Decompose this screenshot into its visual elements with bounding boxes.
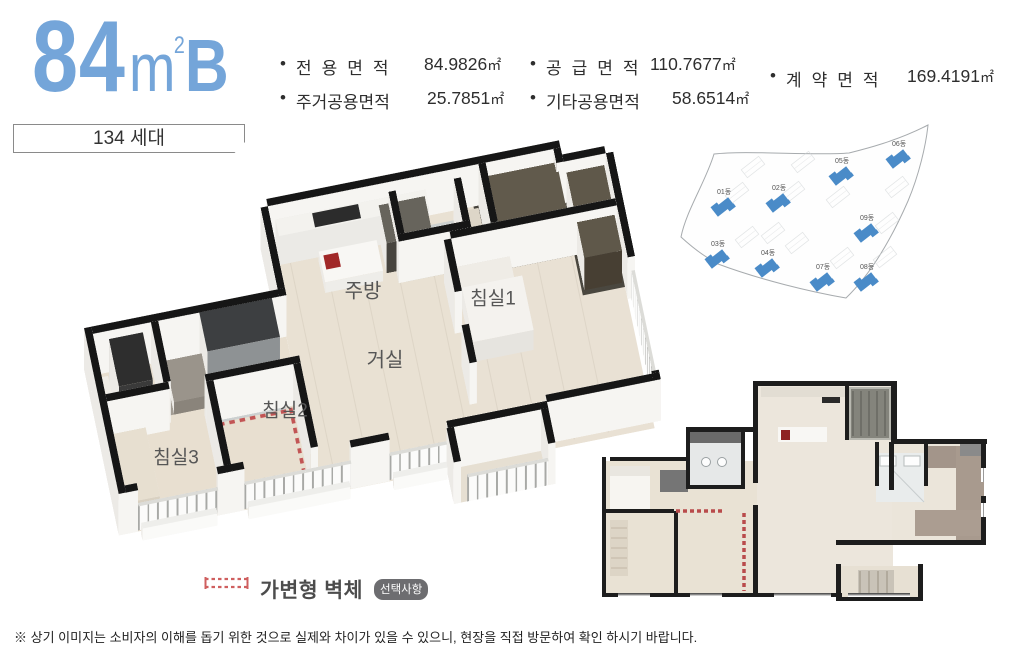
svg-text:05동: 05동 <box>835 157 850 165</box>
svg-text:06동: 06동 <box>892 140 907 148</box>
svg-text:03동: 03동 <box>711 240 726 248</box>
svg-text:09동: 09동 <box>860 214 875 222</box>
svg-text:01동: 01동 <box>717 188 732 196</box>
svg-text:08동: 08동 <box>860 263 875 271</box>
svg-text:07동: 07동 <box>816 263 831 271</box>
svg-text:04동: 04동 <box>761 249 776 257</box>
svg-text:02동: 02동 <box>772 184 787 192</box>
